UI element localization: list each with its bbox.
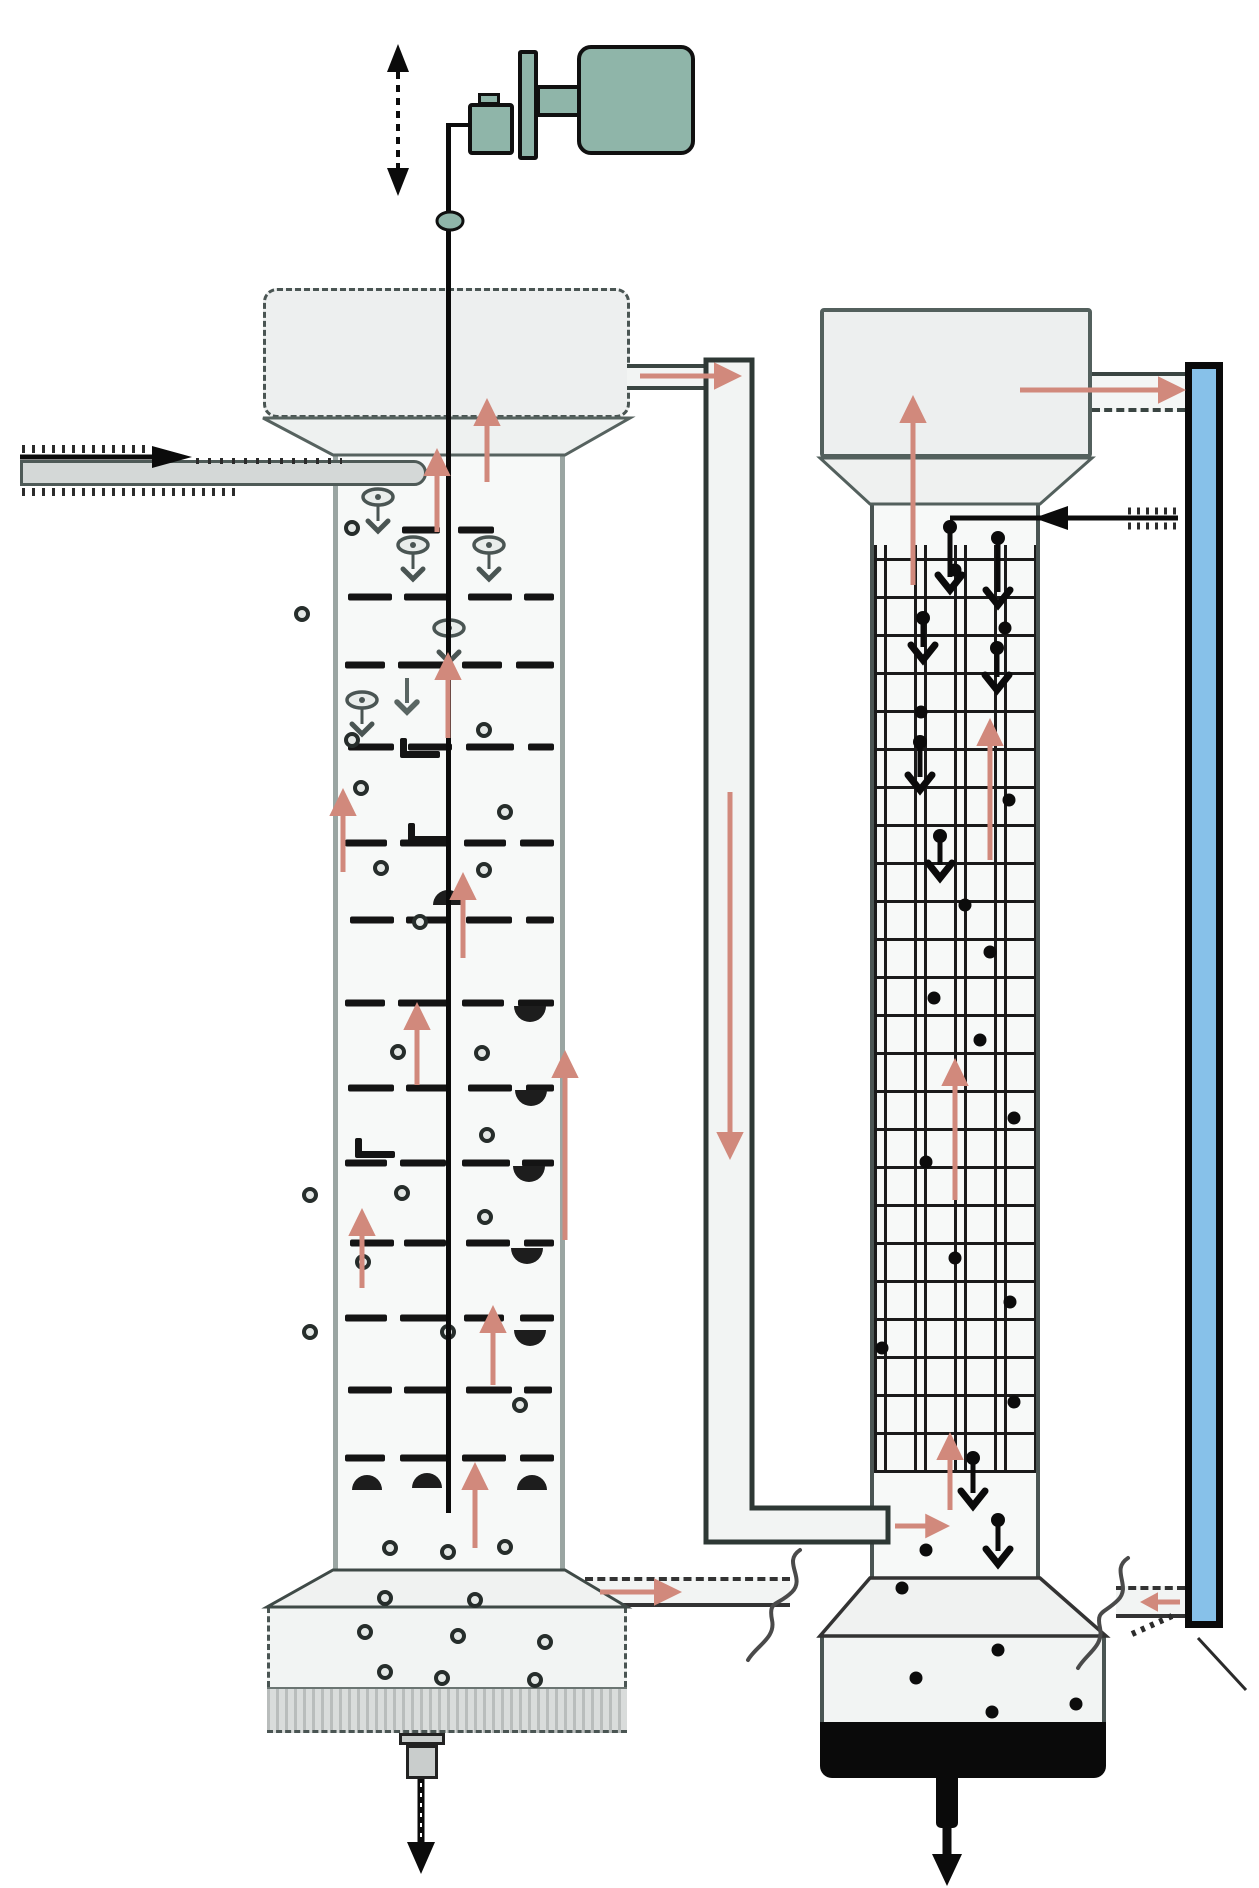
flow-arrow-head (714, 362, 742, 389)
drain-arrow-head (932, 1854, 962, 1886)
left-column-sump (267, 1607, 627, 1687)
diagram-canvas (0, 0, 1259, 1888)
right-column-top-funnel (820, 458, 1092, 504)
right-column-bottom-funnel (820, 1578, 1106, 1636)
droplet-ring (469, 1594, 481, 1606)
left-column-drain-nozzle (406, 1745, 438, 1779)
motor-slider-block (468, 103, 514, 155)
riser-bottom-return-pipe (1116, 1586, 1185, 1618)
droplet-ring (296, 608, 308, 620)
pulse-stroke-arrow-head (387, 44, 409, 72)
flow-arrow-head (716, 1132, 743, 1160)
left-column-bottom-outlet-pipe (585, 1577, 790, 1607)
right-column-heavy-phase-layer (820, 1722, 1106, 1778)
droplet-dot (896, 1582, 909, 1595)
rod-coupling (437, 212, 463, 230)
external-riser-line (1185, 362, 1223, 1628)
right-column-top-settler (820, 308, 1092, 458)
drain-arrow (418, 1779, 425, 1848)
downcomer-pipe (706, 360, 888, 1542)
left-column-top-funnel (263, 418, 630, 455)
pulse-stroke-arrow-head (387, 168, 409, 196)
droplet-ring (304, 1189, 316, 1201)
left-column-body (333, 455, 565, 1570)
right-column-sump (820, 1636, 1106, 1722)
drain-arrow-head (407, 1842, 435, 1874)
droplet-ring (304, 1326, 316, 1338)
right-column-drain-stem (936, 1778, 958, 1828)
droplet-ring (379, 1592, 391, 1604)
left-column-drain-flange (399, 1733, 445, 1745)
right-column-top-outlet-pipe (1092, 372, 1185, 412)
left-column-feed-pipe (20, 460, 427, 486)
hatch-marks (1132, 1616, 1172, 1634)
motor-crank-bar (518, 50, 538, 160)
left-column-top-outlet-pipe (627, 364, 710, 390)
left-column-bottom-plate (267, 1687, 627, 1733)
pulse-drive-motor (577, 45, 695, 155)
hatch-marks (1198, 1638, 1246, 1690)
right-column-packing-grid (874, 545, 1036, 1473)
pulser-drive-rod (446, 123, 470, 127)
left-column-top-settler (263, 288, 630, 418)
left-column-bottom-funnel (267, 1570, 627, 1607)
drain-arrow (943, 1826, 952, 1860)
